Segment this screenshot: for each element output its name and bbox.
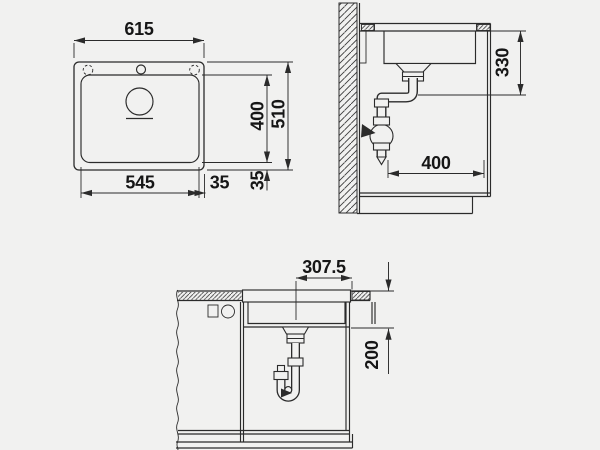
dim-label-35-front: 35 xyxy=(248,171,268,191)
wall-hatch xyxy=(339,3,357,213)
dim-label-510: 510 xyxy=(269,99,289,128)
dim-front-offset: 35 xyxy=(248,170,268,191)
trap-outlet-tip xyxy=(377,157,386,165)
worktop-section xyxy=(360,24,491,32)
appliance-knob xyxy=(222,305,235,318)
tap-hole-right-icon xyxy=(190,65,200,75)
dim-label-400-side: 400 xyxy=(421,153,450,173)
s-trap-front xyxy=(274,327,309,398)
dim-side-offset: 35 xyxy=(184,173,230,199)
tap-hole-center-icon xyxy=(137,65,146,74)
dim-bowl-width: 545 xyxy=(81,167,199,198)
wall-cleat xyxy=(360,31,367,63)
dim-label-400-top: 400 xyxy=(248,101,268,130)
break-line xyxy=(177,290,179,450)
dim-label-330: 330 xyxy=(493,48,513,77)
top-view: 615 545 35 400 510 35 xyxy=(74,19,293,198)
dim-install-depth: 400 xyxy=(388,153,484,178)
technical-drawing-canvas: 615 545 35 400 510 35 xyxy=(0,0,600,450)
dim-label-615: 615 xyxy=(124,19,153,39)
sink-rim-front xyxy=(243,290,351,302)
dim-label-545: 545 xyxy=(125,173,154,193)
dim-center-offset: 307.5 xyxy=(296,257,352,320)
basin-front xyxy=(244,302,350,327)
dim-label-307-5: 307.5 xyxy=(302,257,346,277)
dim-overall-width: 615 xyxy=(74,19,204,58)
side-view: 330 400 xyxy=(339,3,526,214)
sink-dimension-drawing: 615 545 35 400 510 35 xyxy=(0,0,600,450)
sink-outer-outline xyxy=(74,62,204,170)
worktop-cut-left xyxy=(362,25,375,31)
worktop-hatch-right xyxy=(352,292,370,301)
dim-label-200: 200 xyxy=(362,340,382,369)
p-trap-side xyxy=(361,78,413,165)
tap-hole-left-icon xyxy=(83,65,93,75)
dim-label-35-side: 35 xyxy=(210,173,230,193)
drain-circle xyxy=(126,88,153,115)
dim-bowl-depth: 400 xyxy=(202,75,272,163)
basin-section xyxy=(384,31,476,64)
worktop-cut-right xyxy=(477,25,490,31)
appliance-switch xyxy=(208,305,218,317)
worktop-hatch-left xyxy=(178,292,242,300)
front-view: 307.5 200 xyxy=(176,257,394,450)
